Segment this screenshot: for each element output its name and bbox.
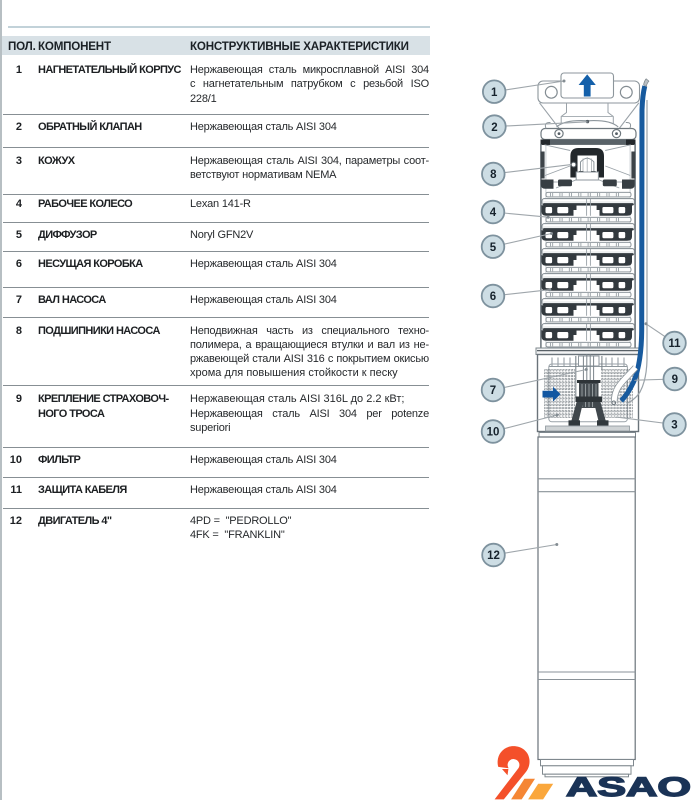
svg-text:6: 6 [490, 291, 496, 303]
svg-text:5: 5 [490, 242, 497, 254]
svg-text:12: 12 [487, 550, 500, 562]
svg-text:10: 10 [487, 427, 500, 439]
svg-text:ASAO: ASAO [566, 772, 691, 800]
svg-text:8: 8 [490, 169, 497, 181]
svg-text:4: 4 [490, 207, 497, 219]
svg-text:7: 7 [490, 385, 496, 397]
svg-text:11: 11 [668, 338, 681, 350]
svg-text:2: 2 [491, 122, 497, 134]
svg-text:3: 3 [671, 420, 677, 432]
svg-text:1: 1 [491, 87, 498, 99]
svg-text:9: 9 [672, 374, 678, 386]
